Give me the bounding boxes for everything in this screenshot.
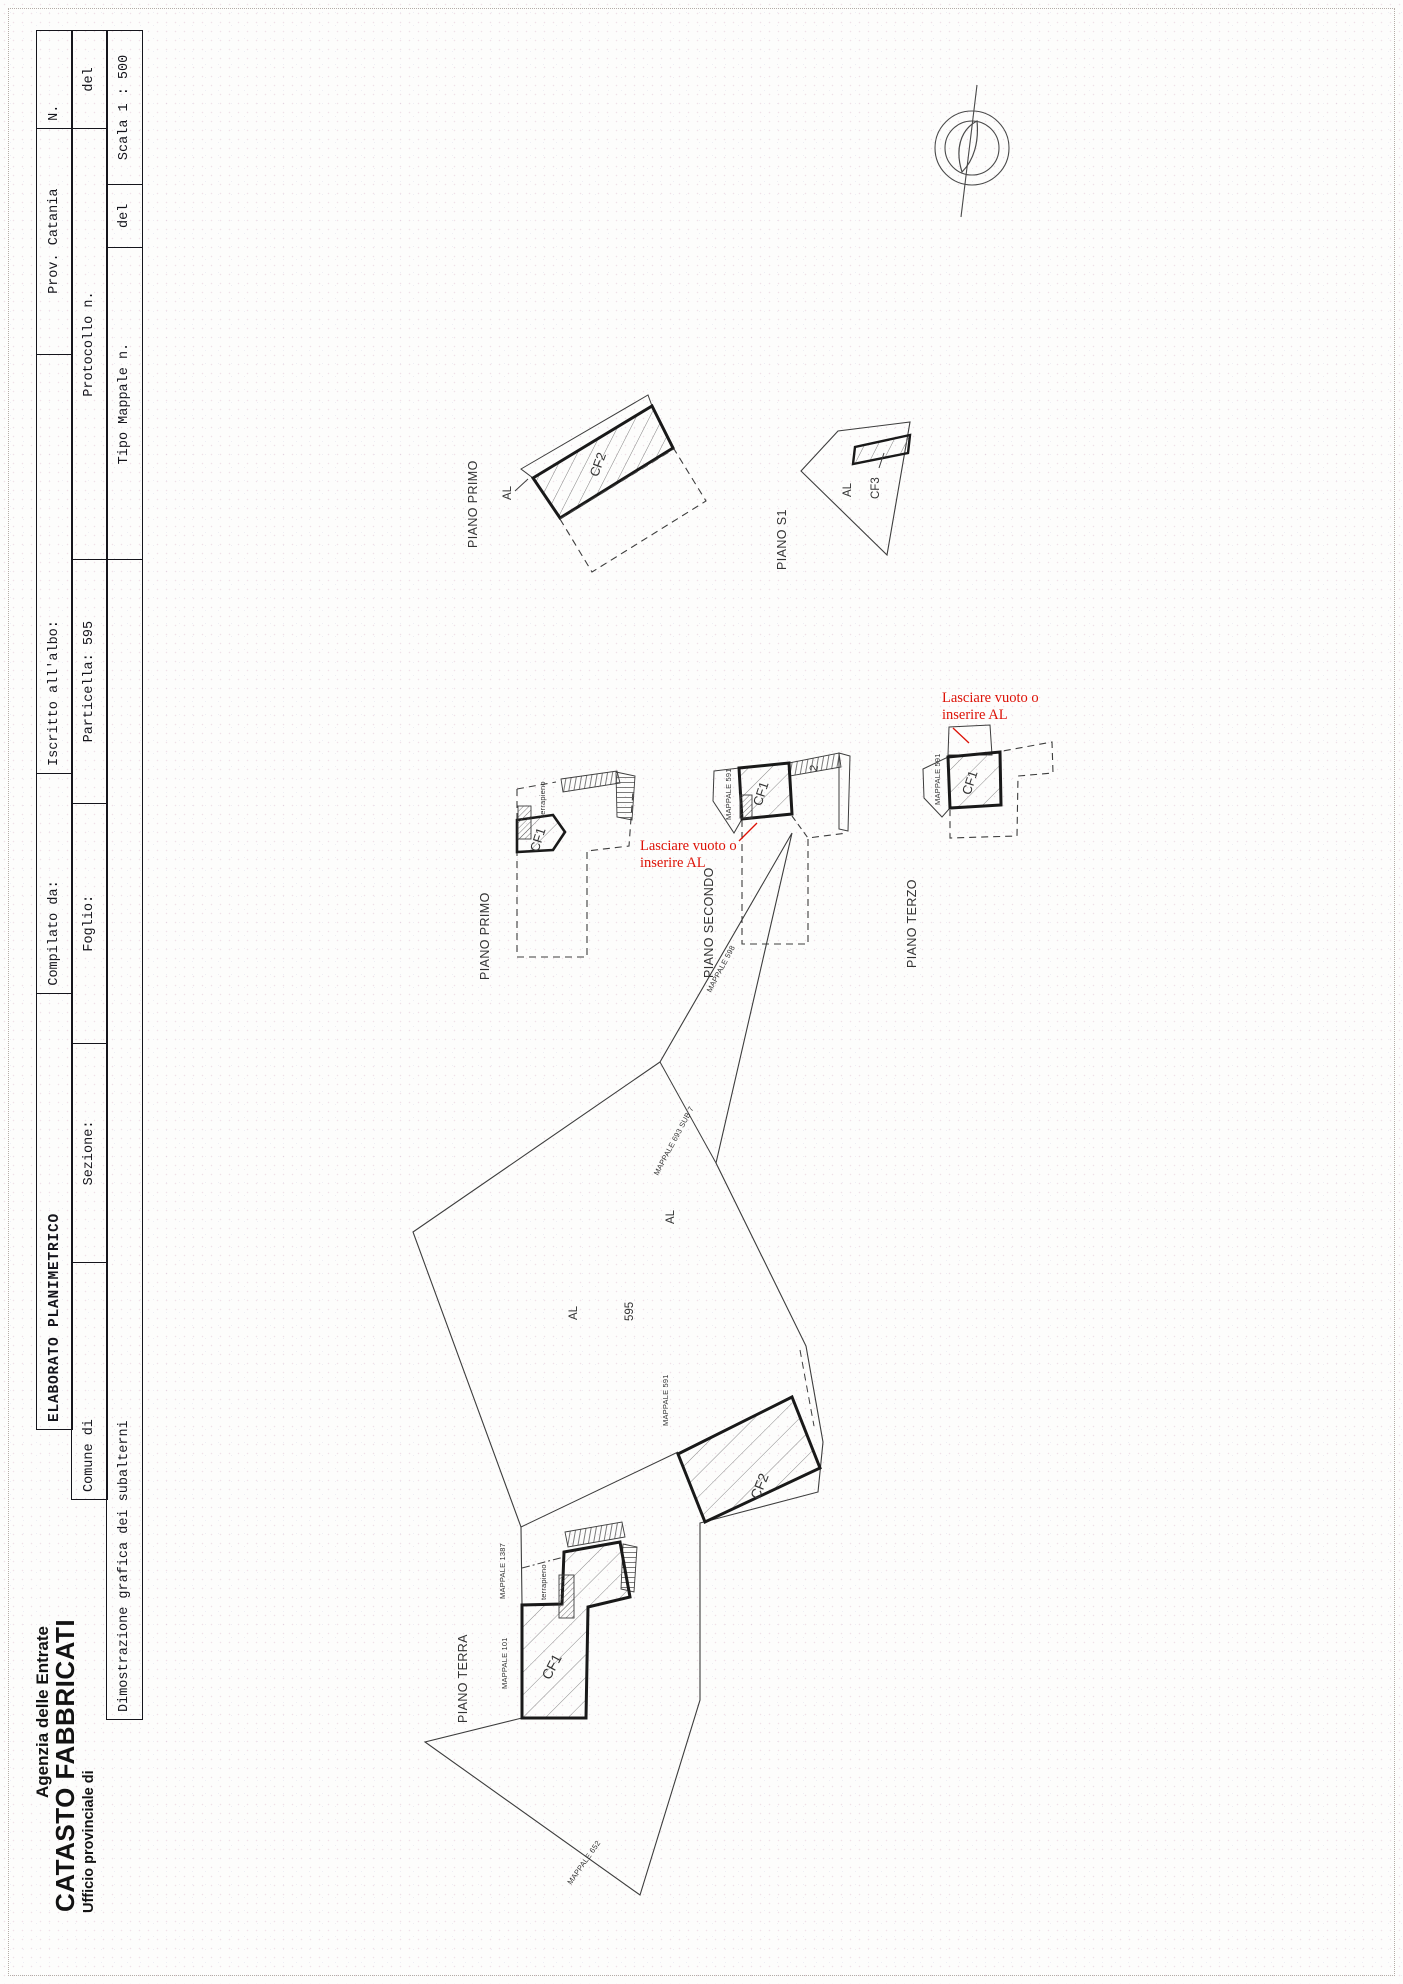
piano-terra-plan: PIANO TERRA CF1 CF2 MAPPALE 1387 MAPPALE… bbox=[413, 833, 823, 1895]
piano-primo-top-plan: PIANO PRIMO CF2 AL bbox=[466, 395, 706, 572]
piano-secondo-label: PIANO SECONDO bbox=[702, 867, 716, 978]
dashed-edge bbox=[792, 816, 808, 838]
al-s1-label: AL bbox=[842, 482, 854, 497]
dashed-floor-extent bbox=[742, 820, 847, 944]
terrapieno-wall bbox=[559, 1575, 574, 1618]
piano-terzo-plan: PIANO TERZO CF1 MAPPALE 591 bbox=[905, 725, 1053, 968]
dashed-floor-extent bbox=[517, 789, 633, 957]
cf2-unit-outline bbox=[678, 1397, 820, 1522]
red-leader-line-2 bbox=[953, 728, 969, 743]
dashed-boundary bbox=[800, 1350, 814, 1426]
stairs-top bbox=[561, 771, 620, 792]
piano-primo-plan: PIANO PRIMO CF1 terrapieno bbox=[478, 771, 635, 980]
piano-s1-label: PIANO S1 bbox=[775, 509, 789, 570]
compass-needle bbox=[959, 121, 977, 172]
terrapieno-wall bbox=[518, 806, 531, 839]
north-compass bbox=[935, 85, 1009, 217]
terrapieno-label: terrapieno bbox=[538, 781, 547, 817]
mappale-101-label: MAPPALE 101 bbox=[500, 1637, 509, 1689]
dashed-edge bbox=[517, 782, 556, 789]
mappale-591-label: MAPPALE 591 bbox=[661, 1374, 670, 1426]
wall-hatch bbox=[740, 795, 752, 818]
al-label-mid: AL bbox=[568, 1305, 580, 1320]
piano-primo-label: PIANO PRIMO bbox=[478, 892, 492, 980]
stairs-side bbox=[616, 772, 635, 820]
mappale-693-sub7-label: MAPPALE 693 SUB 7 bbox=[652, 1105, 696, 1177]
parcel-outline bbox=[413, 833, 823, 1895]
plan-drawing: PIANO PRIMO CF2 AL PIANO S1 AL CF3 PIANO… bbox=[0, 0, 1403, 1984]
terrapieno-label: terrapieno bbox=[539, 1564, 548, 1600]
mappale-591-label: MAPPALE 591 bbox=[724, 768, 733, 820]
piano-terra-label: PIANO TERRA bbox=[456, 1634, 470, 1723]
piano-s1-plan: PIANO S1 AL CF3 bbox=[775, 422, 910, 570]
mappale-1387-label: MAPPALE 1387 bbox=[498, 1543, 507, 1599]
piano-primo-top-label: PIANO PRIMO bbox=[466, 460, 480, 548]
cf3-label: CF3 bbox=[870, 477, 882, 499]
particella-595-label: 595 bbox=[624, 1302, 636, 1321]
red-annotation-2: Lasciare vuoto o inserire AL bbox=[942, 690, 1039, 724]
piano-terzo-label: PIANO TERZO bbox=[905, 879, 919, 968]
red-annotation-1: Lasciare vuoto o inserire AL bbox=[640, 838, 737, 872]
al-leader-line bbox=[515, 479, 528, 491]
al-top-label: AL bbox=[502, 485, 514, 500]
cadastral-sheet: Agenzia delle Entrate CATASTO FABBRICATI… bbox=[0, 0, 1403, 1984]
al-label-near-cf2: AL bbox=[665, 1209, 677, 1224]
mappale-591-label: MAPPALE 591 bbox=[933, 753, 942, 805]
courtyard-boundary bbox=[521, 1452, 678, 1527]
